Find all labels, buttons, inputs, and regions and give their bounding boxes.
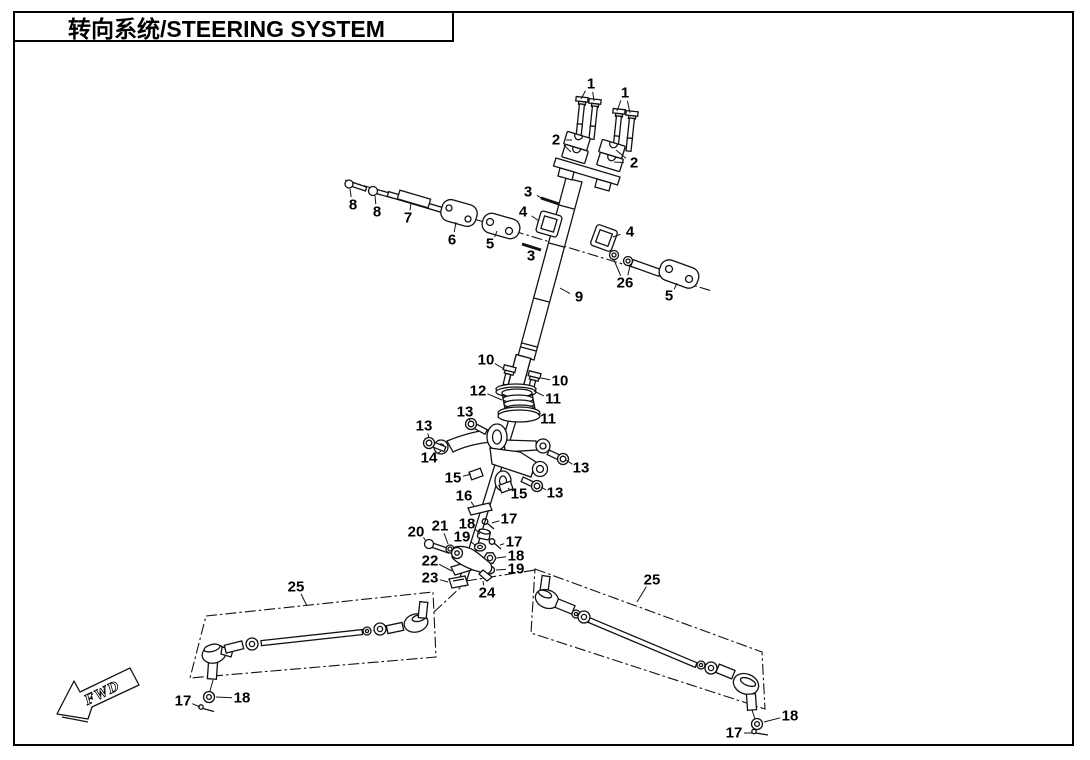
title-box: 转向系统/STEERING SYSTEM bbox=[13, 11, 454, 42]
parts-catalog-page: FWD 112233445567889101011111213131313141… bbox=[0, 0, 1090, 760]
page-title: 转向系统/STEERING SYSTEM bbox=[68, 10, 385, 44]
page-border bbox=[13, 11, 1074, 746]
